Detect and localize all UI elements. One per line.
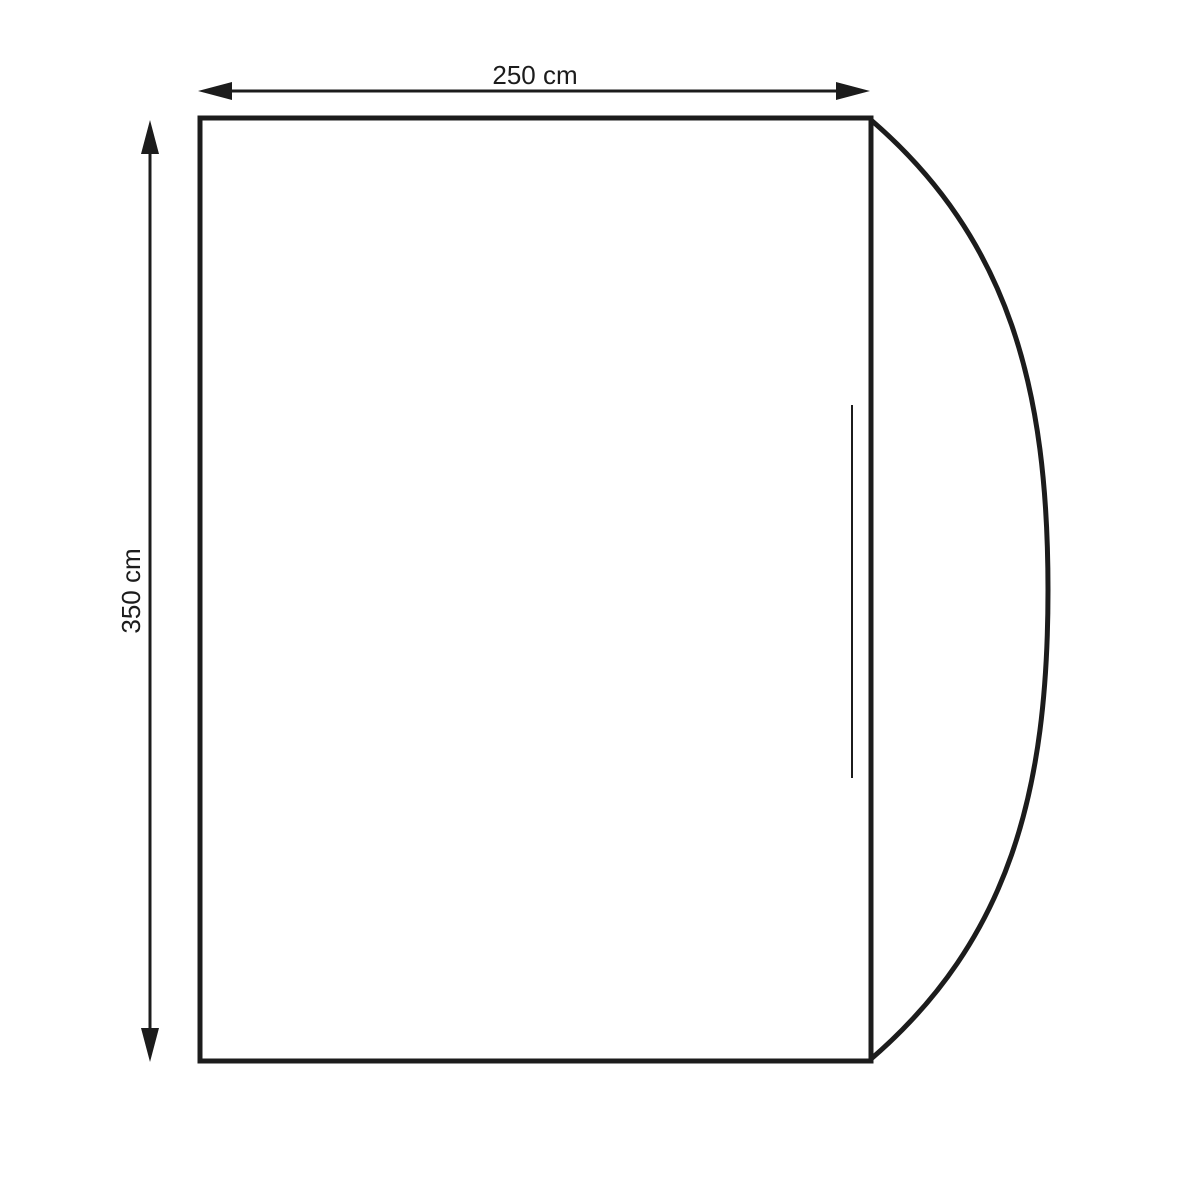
height-arrowhead-top-icon: [141, 120, 159, 154]
width-dimension-label: 250 cm: [492, 60, 577, 90]
height-dimension-label: 350 cm: [116, 548, 146, 633]
product-shape: [200, 118, 1048, 1061]
side-bulge-curve: [871, 120, 1048, 1059]
diagram-canvas: 250 cm 350 cm: [0, 0, 1181, 1181]
width-arrowhead-left-icon: [198, 82, 232, 100]
product-outline-rect: [200, 118, 871, 1061]
height-dimension: 350 cm: [116, 120, 159, 1062]
dimension-diagram: 250 cm 350 cm: [0, 0, 1181, 1181]
height-arrowhead-bottom-icon: [141, 1028, 159, 1062]
width-dimension: 250 cm: [198, 60, 870, 100]
width-arrowhead-right-icon: [836, 82, 870, 100]
